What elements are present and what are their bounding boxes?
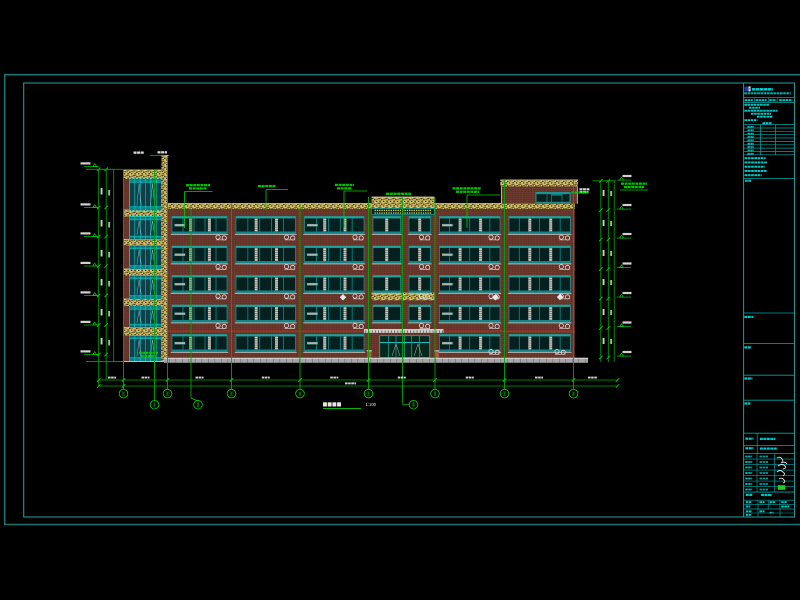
svg-text:1:100: 1:100 — [366, 402, 377, 407]
